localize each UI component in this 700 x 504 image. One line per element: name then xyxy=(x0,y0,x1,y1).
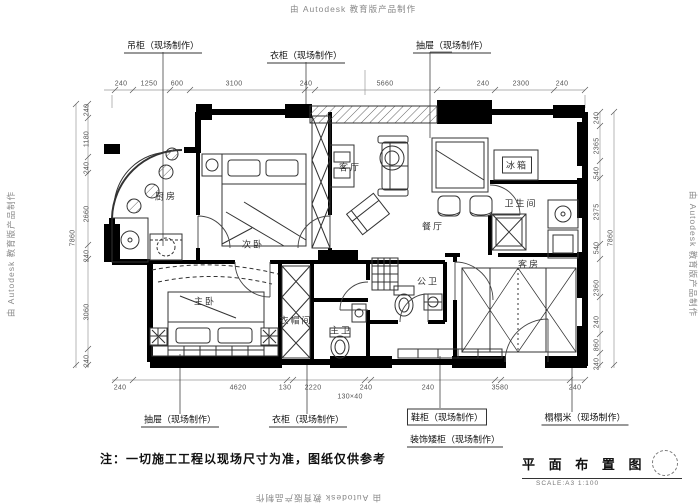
drawing-scale: SCALE:A3 1:100 xyxy=(522,480,682,487)
bed-secondary xyxy=(202,154,306,246)
construction-note: 注：一切施工工程以现场尺寸为准，图纸仅供参考 xyxy=(100,450,386,467)
drawing-title: 平 面 布 置 图 xyxy=(522,454,646,473)
revision-circle-icon xyxy=(652,450,678,476)
watermark-bottom: 由 Autodesk 教育版产品制作 xyxy=(255,492,381,504)
drawer-chest xyxy=(152,346,278,356)
bathroom-counters xyxy=(492,200,578,258)
plants xyxy=(150,328,278,345)
window-hatch-band xyxy=(310,106,437,123)
bay-window xyxy=(112,148,182,218)
wardrobe xyxy=(312,116,330,248)
bed-master xyxy=(152,265,278,350)
watermark-top: 由 Autodesk 教育版产品制作 xyxy=(290,3,416,15)
toilet-guest xyxy=(394,286,442,316)
title-block: 平 面 布 置 图 SCALE:A3 1:100 xyxy=(522,450,682,487)
floor-plan-page: 厨房次卧客厅餐厅冰箱卫生间主卧衣帽间主卫公卫客房吊柜（现场制作）衣柜（现场制作）… xyxy=(0,0,700,504)
toilet-master xyxy=(330,304,366,358)
dining-table xyxy=(432,138,488,192)
tv-cabinet xyxy=(330,145,354,187)
watermark-left: 由 Autodesk 教育版产品制作 xyxy=(5,191,17,317)
floor-plan-drawing xyxy=(0,0,700,504)
coffee-table xyxy=(347,193,390,234)
watermark-right: 由 Autodesk 教育版产品制作 xyxy=(687,191,699,317)
fridge-box xyxy=(494,150,538,180)
closet-boxes xyxy=(282,266,310,358)
washer xyxy=(150,234,182,260)
tatami-grid xyxy=(462,268,576,352)
